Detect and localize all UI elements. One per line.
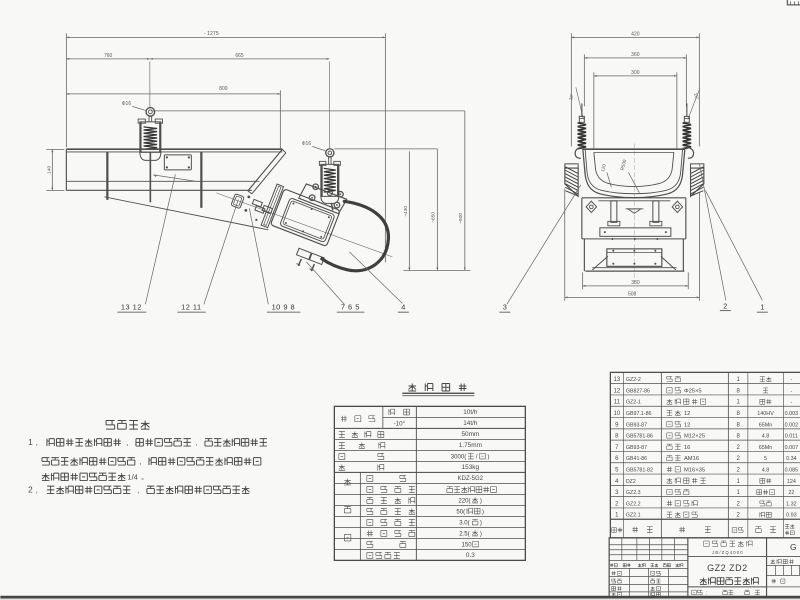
svg-text:420: 420	[631, 32, 640, 38]
svg-text:13: 13	[614, 377, 621, 383]
svg-text:-: -	[790, 388, 792, 394]
svg-text:-10°: -10°	[394, 420, 406, 427]
svg-text:GB41-86: GB41-86	[626, 456, 647, 462]
svg-text:0.34: 0.34	[786, 456, 797, 462]
svg-text:GZ2 ZD2: GZ2 ZD2	[707, 563, 748, 573]
svg-text:GZ2.1: GZ2.1	[626, 513, 641, 519]
svg-text:0.93: 0.93	[786, 513, 797, 519]
svg-text:4: 4	[401, 302, 405, 311]
svg-text:GB5781-82: GB5781-82	[626, 468, 653, 474]
svg-text:50(: 50(	[456, 509, 465, 515]
svg-text:12: 12	[614, 388, 621, 394]
svg-text:): )	[487, 454, 489, 460]
svg-text:1.75mm: 1.75mm	[459, 442, 482, 449]
svg-text:GZ2-1: GZ2-1	[626, 400, 641, 406]
svg-text:12: 12	[684, 411, 690, 417]
svg-text:AM16: AM16	[684, 456, 699, 462]
svg-text:): )	[480, 531, 482, 537]
svg-text:300: 300	[631, 70, 640, 76]
svg-text:140: 140	[46, 166, 52, 174]
svg-text:-: -	[790, 400, 792, 406]
svg-text:GB93-87: GB93-87	[626, 422, 647, 428]
svg-text:3.0(: 3.0(	[459, 520, 469, 526]
svg-text:0.3: 0.3	[466, 552, 475, 559]
svg-text:360: 360	[631, 52, 640, 58]
svg-text:GB827-86: GB827-86	[626, 388, 650, 394]
svg-text:380: 380	[631, 280, 640, 286]
svg-text:800: 800	[219, 86, 228, 92]
svg-text:0.007: 0.007	[785, 445, 799, 451]
svg-text:508: 508	[628, 292, 637, 298]
svg-text:,: ,	[36, 485, 38, 494]
svg-text:10: 10	[614, 411, 621, 417]
svg-text:M12×25: M12×25	[684, 434, 705, 440]
svg-text:-: -	[790, 377, 792, 383]
svg-text:760: 760	[104, 53, 113, 59]
svg-text:11: 11	[614, 400, 621, 406]
svg-text:140HV: 140HV	[757, 411, 774, 417]
svg-text:0.002: 0.002	[785, 422, 799, 428]
svg-text:Φ16: Φ16	[122, 101, 132, 107]
svg-text:,: ,	[36, 438, 38, 447]
svg-text:,: ,	[126, 438, 128, 447]
svg-text:Φ16: Φ16	[302, 141, 312, 147]
svg-text:GB5781-86: GB5781-86	[626, 434, 653, 440]
svg-text:12 11: 12 11	[181, 302, 201, 311]
svg-text:0.003: 0.003	[785, 411, 799, 417]
svg-text:12: 12	[684, 422, 690, 428]
svg-text:GZ2-2: GZ2-2	[626, 377, 641, 383]
svg-text:4.8: 4.8	[762, 468, 770, 474]
svg-text:2: 2	[28, 485, 33, 494]
svg-text:3000(: 3000(	[451, 454, 467, 460]
svg-text:DZ2: DZ2	[626, 479, 636, 485]
svg-text:220(: 220(	[458, 498, 470, 504]
svg-text:,: ,	[139, 457, 141, 466]
svg-text:5: 5	[764, 456, 767, 462]
svg-text:3: 3	[503, 302, 507, 311]
svg-text:G: G	[790, 542, 797, 552]
svg-text:50mm: 50mm	[461, 431, 479, 438]
svg-text:10t/h: 10t/h	[463, 409, 478, 416]
svg-text:~430: ~430	[403, 206, 409, 217]
svg-text:): )	[480, 498, 482, 504]
svg-text:- 1275: - 1275	[204, 31, 219, 37]
svg-text:。: 。	[141, 475, 147, 481]
svg-text:0.085: 0.085	[785, 468, 799, 474]
svg-text:665: 665	[235, 53, 244, 59]
svg-text:~900: ~900	[458, 213, 464, 224]
svg-text:1: 1	[760, 302, 764, 311]
svg-text:): )	[482, 509, 484, 515]
svg-text:22: 22	[788, 490, 794, 496]
svg-text:GB93-87: GB93-87	[626, 445, 647, 451]
svg-text:14t/h: 14t/h	[463, 420, 478, 427]
svg-text:1.32: 1.32	[786, 501, 797, 507]
svg-text:153kg: 153kg	[462, 464, 480, 471]
svg-text:GZ2.2: GZ2.2	[626, 501, 641, 507]
svg-text:Φ25×5: Φ25×5	[684, 388, 702, 394]
svg-text:,: ,	[137, 485, 139, 494]
svg-text:13 12: 13 12	[121, 302, 142, 311]
svg-text:150: 150	[461, 542, 472, 548]
svg-text:1: 1	[28, 438, 33, 447]
svg-text:16: 16	[684, 445, 690, 451]
svg-text::: :	[706, 590, 707, 596]
svg-text:J B / Z Q 4 0 0 0: J B / Z Q 4 0 0 0	[712, 550, 743, 555]
svg-text:GZ2.3: GZ2.3	[626, 490, 641, 496]
svg-text:124: 124	[787, 479, 796, 485]
svg-text:0.011: 0.011	[785, 434, 798, 440]
svg-text:M16×35: M16×35	[684, 468, 705, 474]
svg-text:7 6 5: 7 6 5	[341, 302, 360, 311]
svg-text:KDZ-5G2: KDZ-5G2	[458, 476, 484, 482]
svg-text:65Mn: 65Mn	[759, 422, 773, 428]
svg-text:): )	[480, 520, 482, 526]
svg-text:4.8: 4.8	[762, 434, 770, 440]
svg-text:2: 2	[723, 301, 727, 310]
svg-text:~650: ~650	[430, 212, 436, 223]
svg-text:2.5(: 2.5(	[459, 531, 469, 537]
svg-text:10 9 8: 10 9 8	[272, 302, 296, 311]
svg-text:GB97.1-86: GB97.1-86	[626, 411, 652, 417]
svg-text:65Mn: 65Mn	[759, 445, 773, 451]
svg-text:1/4: 1/4	[127, 472, 138, 481]
svg-text:,: ,	[195, 438, 197, 447]
